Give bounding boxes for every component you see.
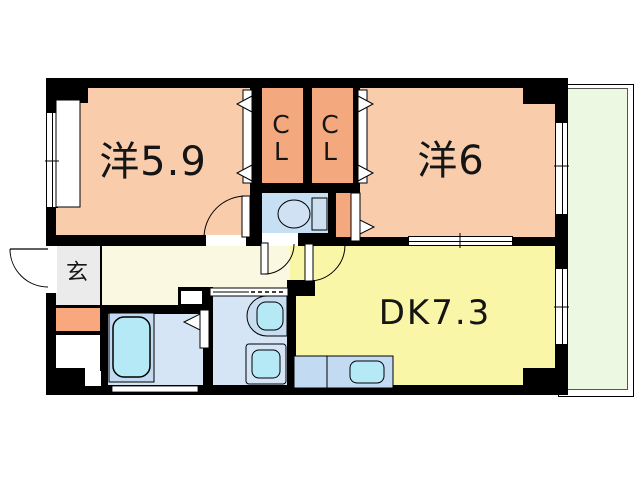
bedroom2-label: 洋6 bbox=[417, 140, 484, 182]
wall-bathroom-top bbox=[102, 305, 213, 314]
closet1-label: C L bbox=[272, 111, 289, 165]
bedroom1-label: 洋5.9 bbox=[99, 141, 207, 183]
wall-closets-bottom bbox=[250, 183, 360, 193]
window-bedroom1 bbox=[46, 112, 58, 208]
closet1-letter-l: L bbox=[272, 138, 289, 165]
wall-top bbox=[46, 78, 568, 88]
wall-between-closets bbox=[303, 88, 312, 190]
window-bedroom1-sash bbox=[52, 113, 53, 207]
hallway-floor-b bbox=[100, 246, 178, 308]
closet1-letter-c: C bbox=[272, 111, 289, 138]
wall-bedroom1-bottom bbox=[46, 235, 262, 246]
window-dk-sash bbox=[562, 269, 563, 344]
window-dk-balcony bbox=[555, 268, 568, 345]
sliding-door-sash bbox=[409, 241, 512, 242]
entrance-label: 玄 bbox=[66, 261, 88, 284]
washroom-floor bbox=[208, 288, 294, 388]
line-entrance-step bbox=[56, 305, 102, 308]
entrance-door bbox=[10, 249, 48, 287]
wall-hall-bath bbox=[178, 287, 213, 305]
wall-bedroom1-closet1 bbox=[250, 88, 262, 190]
column-top-right bbox=[523, 88, 557, 104]
wall-dk-stub-top bbox=[296, 235, 315, 246]
wall-bathroom-left bbox=[100, 305, 108, 395]
wall-toilet-bottom bbox=[250, 233, 336, 246]
closet2-letter-l: L bbox=[321, 138, 338, 165]
line-alcove-top bbox=[56, 331, 102, 335]
bathroom-floor bbox=[104, 308, 210, 388]
dining-kitchen-label: DK7.3 bbox=[379, 296, 492, 332]
window-bedroom2-sash bbox=[562, 123, 563, 214]
floor-plan: 洋5.9 洋6 DK7.3 C L C L 玄 bbox=[0, 0, 638, 480]
wall-closet2-bedroom2 bbox=[353, 88, 360, 190]
closet2-letter-c: C bbox=[321, 111, 338, 138]
wall-washroom-right bbox=[287, 280, 296, 390]
column-bottom-right bbox=[523, 368, 568, 395]
line-entrance-right bbox=[100, 246, 102, 306]
column-bottom-left bbox=[46, 368, 85, 395]
balcony-floor bbox=[566, 88, 628, 390]
shoe-cabinet bbox=[56, 306, 102, 332]
column-top-left bbox=[56, 88, 88, 103]
closet2-label: C L bbox=[321, 111, 338, 165]
wall-bottom bbox=[46, 385, 568, 395]
window-bedroom2-balcony bbox=[555, 122, 568, 215]
sliding-door-bedroom2-dk bbox=[408, 236, 513, 246]
